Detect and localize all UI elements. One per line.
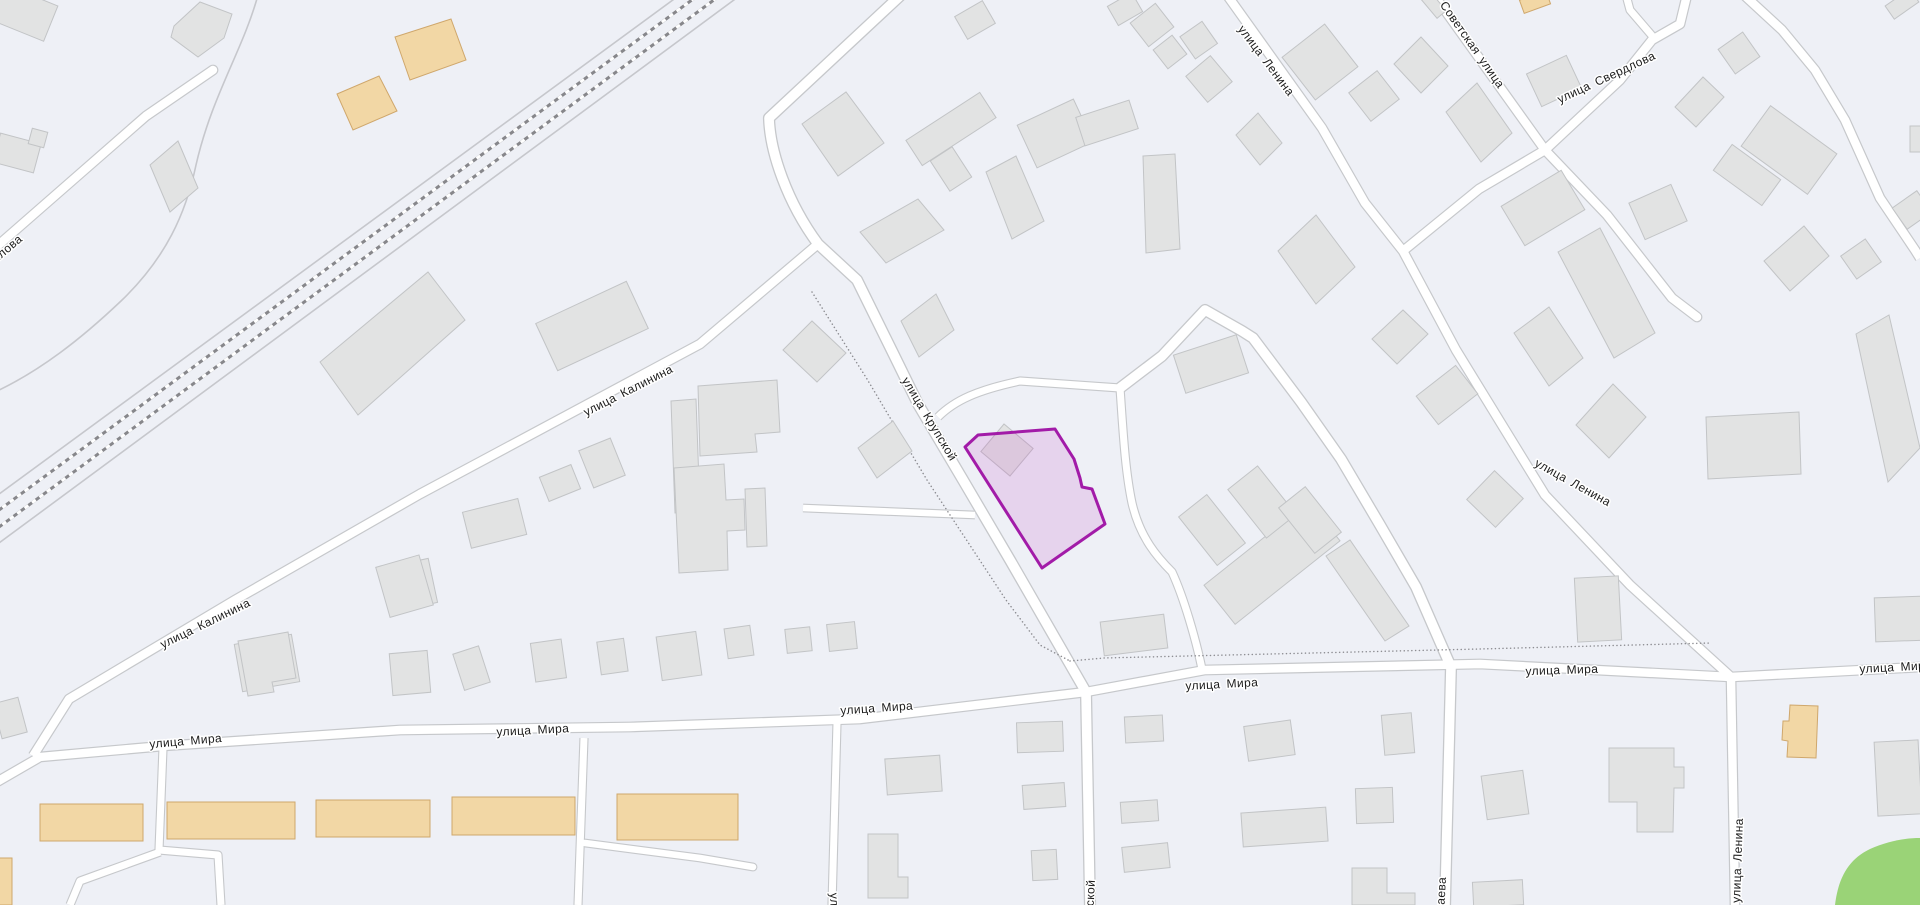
svg-text:улица Мира: улица Мира: [1525, 662, 1598, 679]
svg-text:улица: улица: [827, 893, 842, 905]
svg-text:улица Ленина: улица Ленина: [1729, 818, 1746, 903]
